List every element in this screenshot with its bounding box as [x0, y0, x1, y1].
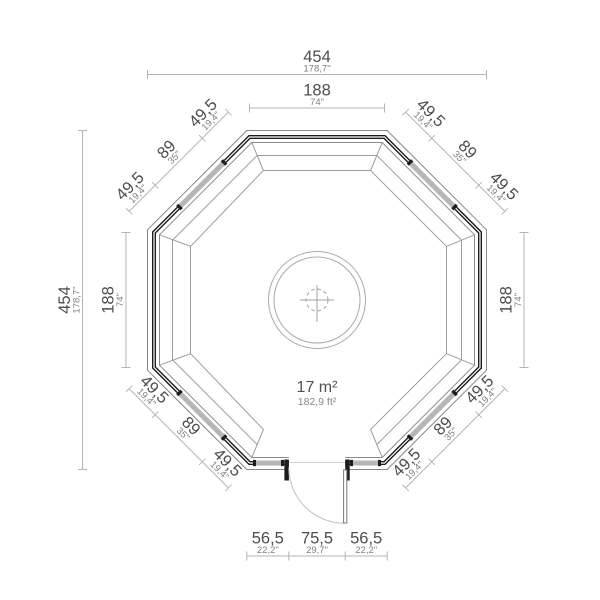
floor-plan-page: 17 m² 182,9 ft² 454 178,7" 188 74" 454 1…: [0, 0, 600, 600]
dim-top-wall-inch: 74": [310, 97, 324, 108]
door-leaf: [344, 470, 347, 523]
door-swing-arc: [289, 468, 345, 524]
chimney-crosshair-icon: [300, 285, 334, 322]
dim-left-wall: 188 74": [100, 233, 131, 368]
dim-overall-height-inch: 178,7": [72, 286, 83, 313]
window-top-right: [409, 161, 456, 208]
dim-diagonal-bottom-left: 49,5 19,4" 89 35" 49,5 19,4": [126, 370, 247, 491]
dim-diagonal-top-left: 49,5 19,4" 89 35" 49,5 19,4": [111, 94, 232, 215]
dim-diagonal-bottom-right: 49,5 19,4" 89 35" 49,5 19,4": [387, 370, 508, 491]
floor-plan-canvas: 17 m² 182,9 ft² 454 178,7" 188 74" 454 1…: [0, 0, 600, 600]
area-label-imperial: 182,9 ft²: [298, 396, 337, 408]
dim-bottom-right-inch: 22,2": [355, 545, 377, 556]
dim-overall-height: 454 178,7": [56, 131, 87, 470]
fire-pit: [269, 252, 366, 349]
dim-right-wall-inch: 74": [513, 293, 524, 307]
door-opening-cut: [289, 450, 345, 472]
dim-overall-width-inch: 178,7": [303, 64, 330, 75]
dim-diagonal-top-right: 49,5 19,4" 89 35" 49,5 19,4": [402, 94, 523, 215]
dim-bottom: 56,5 22,2" 75,5 29,7" 56,5 22,2": [247, 530, 387, 561]
building-plan: 17 m² 182,9 ft²: [148, 131, 487, 524]
door-post-left: [284, 460, 289, 481]
dim-bottom-left-inch: 22,2": [257, 545, 279, 556]
dim-right-wall: 188 74": [498, 233, 529, 368]
dim-top-wall: 188 74": [250, 82, 385, 113]
window-top-left: [178, 161, 225, 208]
dim-overall-width: 454 178,7": [148, 48, 487, 79]
dim-door-inch: 29,7": [306, 545, 328, 556]
area-label-metric: 17 m²: [297, 379, 339, 396]
dim-left-wall-inch: 74": [115, 293, 126, 307]
